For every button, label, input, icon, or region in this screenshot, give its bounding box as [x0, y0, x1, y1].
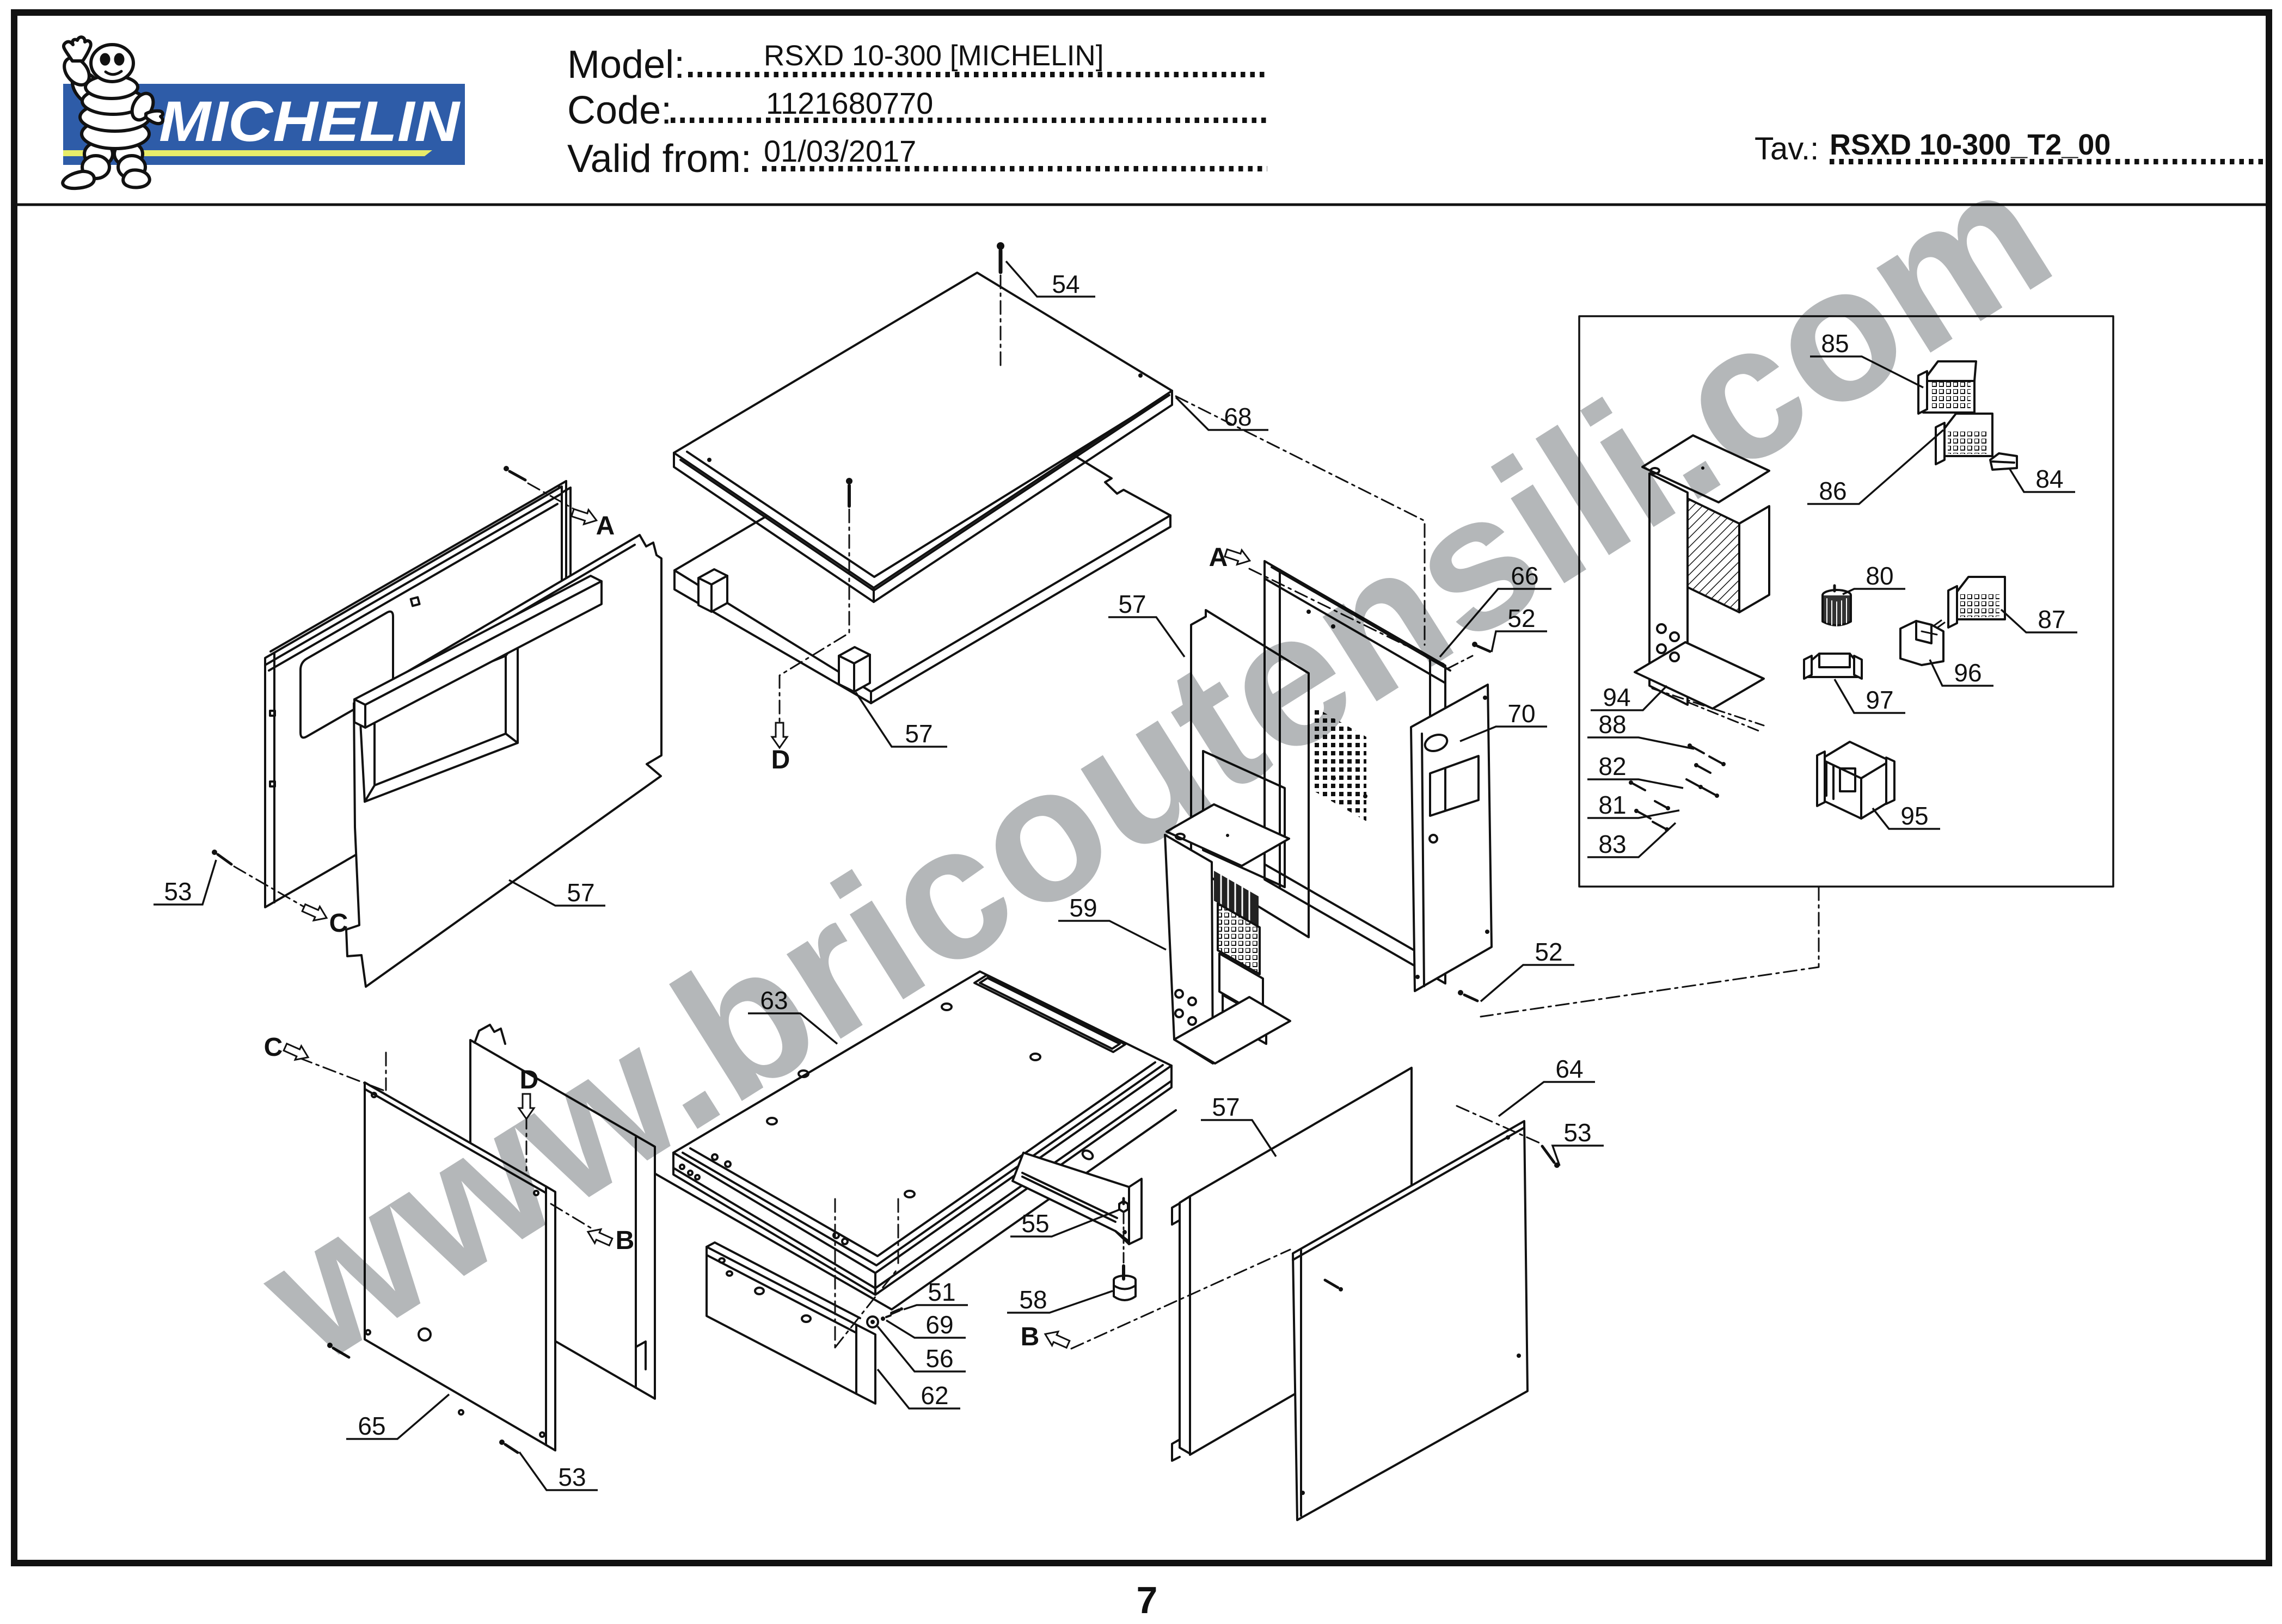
svg-text:D: D	[771, 746, 790, 774]
svg-text:A: A	[1209, 543, 1228, 572]
svg-text:51: 51	[928, 1278, 955, 1306]
svg-text:7: 7	[1137, 1579, 1158, 1621]
svg-text:87: 87	[2038, 605, 2065, 633]
svg-text:B: B	[1021, 1322, 1040, 1351]
svg-text:01/03/2017: 01/03/2017	[764, 134, 916, 168]
svg-text:56: 56	[925, 1344, 953, 1373]
svg-text:58: 58	[1019, 1285, 1047, 1314]
svg-text:53: 53	[1563, 1118, 1591, 1147]
svg-text:69: 69	[925, 1311, 953, 1339]
svg-text:96: 96	[1954, 659, 1982, 687]
svg-text:97: 97	[1866, 686, 1893, 714]
svg-text:1121680770: 1121680770	[766, 86, 933, 120]
svg-text:B: B	[616, 1226, 635, 1255]
svg-text:53: 53	[558, 1463, 586, 1491]
svg-text:83: 83	[1598, 830, 1626, 858]
svg-text:94: 94	[1603, 683, 1630, 711]
svg-text:82: 82	[1598, 752, 1626, 780]
svg-text:RSXD 10-300 [MICHELIN]: RSXD 10-300 [MICHELIN]	[764, 40, 1103, 72]
svg-text:81: 81	[1598, 791, 1626, 819]
svg-text:Tav.:: Tav.:	[1755, 131, 1819, 167]
svg-text:Model:: Model:	[567, 43, 685, 87]
svg-text:64: 64	[1555, 1055, 1583, 1083]
svg-text:52: 52	[1535, 938, 1562, 966]
svg-text:MICHELIN: MICHELIN	[159, 90, 461, 153]
svg-text:57: 57	[905, 719, 933, 748]
svg-text:95: 95	[1900, 802, 1928, 830]
svg-text:80: 80	[1866, 562, 1893, 590]
svg-text:84: 84	[2035, 465, 2063, 493]
svg-text:70: 70	[1507, 699, 1535, 728]
svg-text:86: 86	[1819, 477, 1847, 505]
svg-text:53: 53	[164, 877, 192, 906]
svg-text:55: 55	[1021, 1209, 1049, 1238]
svg-text:C: C	[329, 909, 348, 938]
svg-text:57: 57	[1212, 1093, 1240, 1121]
svg-text:C: C	[264, 1033, 283, 1062]
svg-text:68: 68	[1224, 403, 1252, 431]
svg-text:62: 62	[921, 1381, 948, 1410]
svg-text:88: 88	[1598, 710, 1626, 739]
svg-text:54: 54	[1052, 270, 1079, 298]
svg-text:Code:: Code:	[567, 89, 672, 132]
svg-text:65: 65	[358, 1412, 385, 1440]
svg-text:Valid from:: Valid from:	[567, 137, 752, 181]
svg-text:A: A	[596, 512, 615, 540]
svg-text:57: 57	[1118, 590, 1146, 618]
svg-text:57: 57	[567, 878, 594, 907]
